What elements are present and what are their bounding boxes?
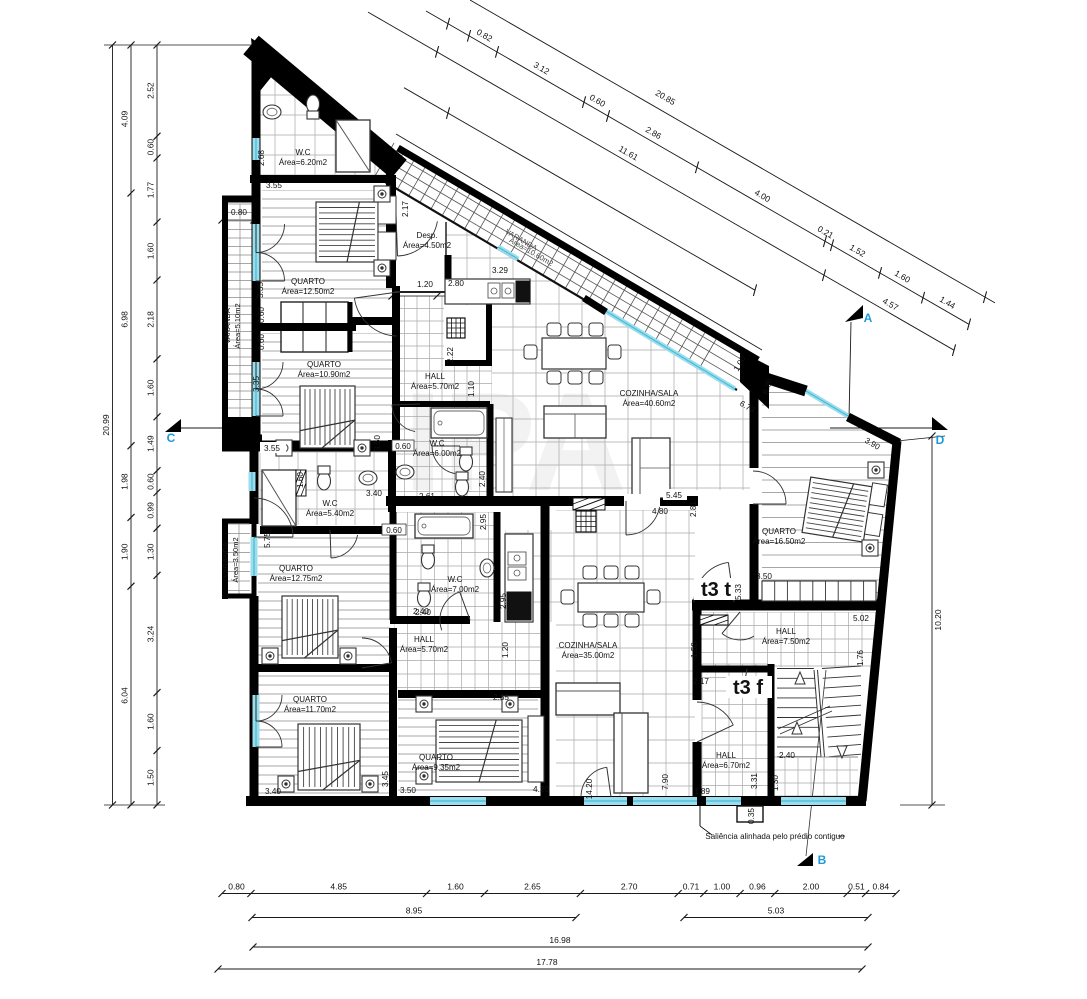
svg-text:2.18: 2.18	[146, 311, 156, 328]
svg-text:B: B	[818, 853, 827, 867]
svg-text:W.C: W.C	[447, 575, 462, 584]
svg-text:W.C: W.C	[322, 499, 337, 508]
svg-text:4.80: 4.80	[652, 507, 668, 516]
svg-text:Área=3.50m2: Área=3.50m2	[231, 537, 240, 582]
svg-text:1.90: 1.90	[120, 543, 130, 560]
svg-text:6.04: 6.04	[120, 687, 130, 704]
svg-text:Área=5.70m2: Área=5.70m2	[400, 645, 449, 654]
svg-text:0.71: 0.71	[683, 882, 700, 892]
svg-text:20.99: 20.99	[101, 414, 111, 436]
svg-text:VARANDA: VARANDA	[221, 542, 230, 578]
svg-text:Área=10.90m2: Área=10.90m2	[298, 370, 351, 379]
svg-text:Área=9.35m2: Área=9.35m2	[412, 763, 461, 772]
svg-text:5.75: 5.75	[263, 532, 272, 548]
svg-text:5.03: 5.03	[768, 906, 785, 916]
svg-text:0.60: 0.60	[146, 473, 156, 490]
svg-text:QUARTO: QUARTO	[279, 564, 313, 573]
svg-text:0.60: 0.60	[146, 139, 156, 156]
svg-text:1.89: 1.89	[694, 787, 710, 796]
svg-text:Saliência alinhada pelo prédio: Saliência alinhada pelo prédio contiguo	[705, 832, 845, 841]
svg-text:Desp.: Desp.	[417, 231, 438, 240]
svg-text:0.84: 0.84	[873, 882, 890, 892]
svg-text:2.65: 2.65	[524, 882, 541, 892]
svg-text:Área=6.00m2: Área=6.00m2	[413, 449, 462, 458]
svg-text:3.50: 3.50	[400, 786, 416, 795]
svg-text:Área=5.70m2: Área=5.70m2	[411, 382, 460, 391]
svg-text:3.24: 3.24	[146, 625, 156, 642]
svg-text:QUARTO: QUARTO	[293, 695, 327, 704]
svg-text:1.30: 1.30	[771, 775, 780, 791]
svg-text:QUARTO: QUARTO	[419, 753, 453, 762]
svg-text:2.35: 2.35	[493, 693, 509, 702]
svg-text:1.50: 1.50	[690, 642, 699, 658]
svg-text:2.40: 2.40	[415, 608, 431, 617]
svg-text:1.76: 1.76	[856, 650, 865, 666]
svg-text:3.40: 3.40	[366, 489, 382, 498]
svg-text:17.78: 17.78	[536, 957, 558, 967]
svg-text:2.17: 2.17	[693, 677, 709, 686]
svg-text:10.20: 10.20	[933, 609, 943, 631]
svg-text:1.60: 1.60	[146, 713, 156, 730]
svg-text:COZINHA/SALA: COZINHA/SALA	[620, 389, 679, 398]
svg-text:1.60: 1.60	[447, 882, 464, 892]
svg-text:0.51: 0.51	[848, 882, 865, 892]
svg-text:Área=7.50m2: Área=7.50m2	[762, 637, 811, 646]
svg-text:QUARTO: QUARTO	[307, 360, 341, 369]
svg-text:1.98: 1.98	[120, 473, 130, 490]
svg-text:D: D	[936, 433, 945, 447]
svg-text:3.45: 3.45	[381, 771, 390, 787]
svg-text:3.35: 3.35	[256, 282, 265, 298]
svg-text:2.68: 2.68	[257, 150, 266, 166]
svg-text:1.77: 1.77	[146, 181, 156, 198]
svg-text:Área=11.70m2: Área=11.70m2	[284, 705, 337, 714]
svg-text:1.50: 1.50	[146, 769, 156, 786]
svg-text:QUARTO: QUARTO	[291, 277, 325, 286]
svg-text:Área=5.40m2: Área=5.40m2	[306, 509, 355, 518]
svg-text:2.61: 2.61	[419, 492, 435, 501]
svg-text:t3 f: t3 f	[733, 677, 763, 699]
svg-text:3.55: 3.55	[266, 181, 282, 190]
svg-text:0.96: 0.96	[749, 882, 766, 892]
svg-text:Área=4.50m2: Área=4.50m2	[403, 241, 452, 250]
svg-text:3.40: 3.40	[265, 787, 281, 796]
svg-text:Área=5.10m2: Área=5.10m2	[233, 303, 242, 348]
svg-text:0.35: 0.35	[747, 808, 756, 824]
svg-text:3.55: 3.55	[264, 444, 280, 453]
svg-text:6.98: 6.98	[120, 311, 130, 328]
svg-text:5.45: 5.45	[666, 491, 682, 500]
svg-text:0.60: 0.60	[257, 307, 266, 323]
svg-text:1.60: 1.60	[146, 242, 156, 259]
svg-text:3.50: 3.50	[373, 435, 382, 451]
svg-text:2.80: 2.80	[448, 279, 464, 288]
svg-text:0.80: 0.80	[231, 208, 247, 217]
svg-text:Área=7.00m2: Área=7.00m2	[431, 585, 480, 594]
svg-text:4.85: 4.85	[330, 882, 347, 892]
svg-text:A: A	[864, 311, 873, 325]
svg-text:1.49: 1.49	[146, 435, 156, 452]
svg-text:14.20: 14.20	[585, 778, 594, 799]
svg-text:Área=12.75m2: Área=12.75m2	[270, 574, 323, 583]
svg-text:Área=6.20m2: Área=6.20m2	[279, 158, 328, 167]
svg-text:Área=6.70m2: Área=6.70m2	[702, 761, 751, 770]
svg-text:W.C: W.C	[429, 439, 444, 448]
svg-text:1.20: 1.20	[417, 280, 433, 289]
svg-text:HALL: HALL	[425, 372, 446, 381]
svg-text:C: C	[167, 431, 176, 445]
svg-text:0.99: 0.99	[146, 502, 156, 519]
svg-text:0.60: 0.60	[386, 526, 402, 535]
svg-text:2.95: 2.95	[479, 514, 488, 530]
svg-text:4.20: 4.20	[533, 785, 549, 794]
svg-text:3.31: 3.31	[750, 773, 759, 789]
svg-text:1.60: 1.60	[146, 379, 156, 396]
svg-text:Área=12.50m2: Área=12.50m2	[282, 287, 335, 296]
svg-text:QUARTO: QUARTO	[762, 527, 796, 536]
svg-text:0.60: 0.60	[257, 334, 266, 350]
svg-text:7.90: 7.90	[661, 774, 670, 790]
svg-text:2.95: 2.95	[499, 593, 508, 609]
svg-text:HALL: HALL	[776, 627, 797, 636]
svg-text:2.52: 2.52	[146, 82, 156, 99]
svg-text:3.35: 3.35	[252, 376, 261, 392]
svg-text:1.30: 1.30	[146, 543, 156, 560]
svg-text:1.10: 1.10	[467, 381, 476, 397]
svg-text:COZINHA/SALA: COZINHA/SALA	[559, 641, 618, 650]
svg-text:2.81: 2.81	[689, 501, 698, 517]
svg-text:HALL: HALL	[414, 635, 435, 644]
svg-text:2.22: 2.22	[446, 347, 455, 363]
svg-text:3.50: 3.50	[756, 572, 772, 581]
svg-text:1.20: 1.20	[501, 642, 510, 658]
svg-text:0.60: 0.60	[395, 442, 411, 451]
svg-text:Área=40.60m2: Área=40.60m2	[623, 399, 676, 408]
svg-text:1.60: 1.60	[296, 472, 305, 488]
svg-text:Área=35.00m2: Área=35.00m2	[562, 651, 615, 660]
svg-text:5.02: 5.02	[853, 614, 869, 623]
svg-text:16.98: 16.98	[549, 935, 571, 945]
svg-text:2.40: 2.40	[779, 751, 795, 760]
svg-text:HALL: HALL	[716, 751, 737, 760]
svg-text:2.17: 2.17	[401, 201, 410, 217]
svg-text:8.95: 8.95	[406, 906, 423, 916]
svg-text:2.00: 2.00	[803, 882, 820, 892]
svg-text:5.33: 5.33	[734, 584, 743, 600]
svg-text:2.40: 2.40	[478, 471, 487, 487]
svg-text:W.C: W.C	[295, 148, 310, 157]
svg-text:4.09: 4.09	[120, 110, 130, 127]
svg-text:3.29: 3.29	[492, 266, 508, 275]
svg-text:t3 t: t3 t	[701, 579, 731, 601]
svg-text:1.00: 1.00	[714, 882, 731, 892]
svg-text:0.80: 0.80	[228, 882, 245, 892]
svg-text:Área=16.50m2: Área=16.50m2	[753, 537, 806, 546]
svg-text:2.70: 2.70	[621, 882, 638, 892]
svg-text:VARANDA: VARANDA	[223, 308, 232, 344]
